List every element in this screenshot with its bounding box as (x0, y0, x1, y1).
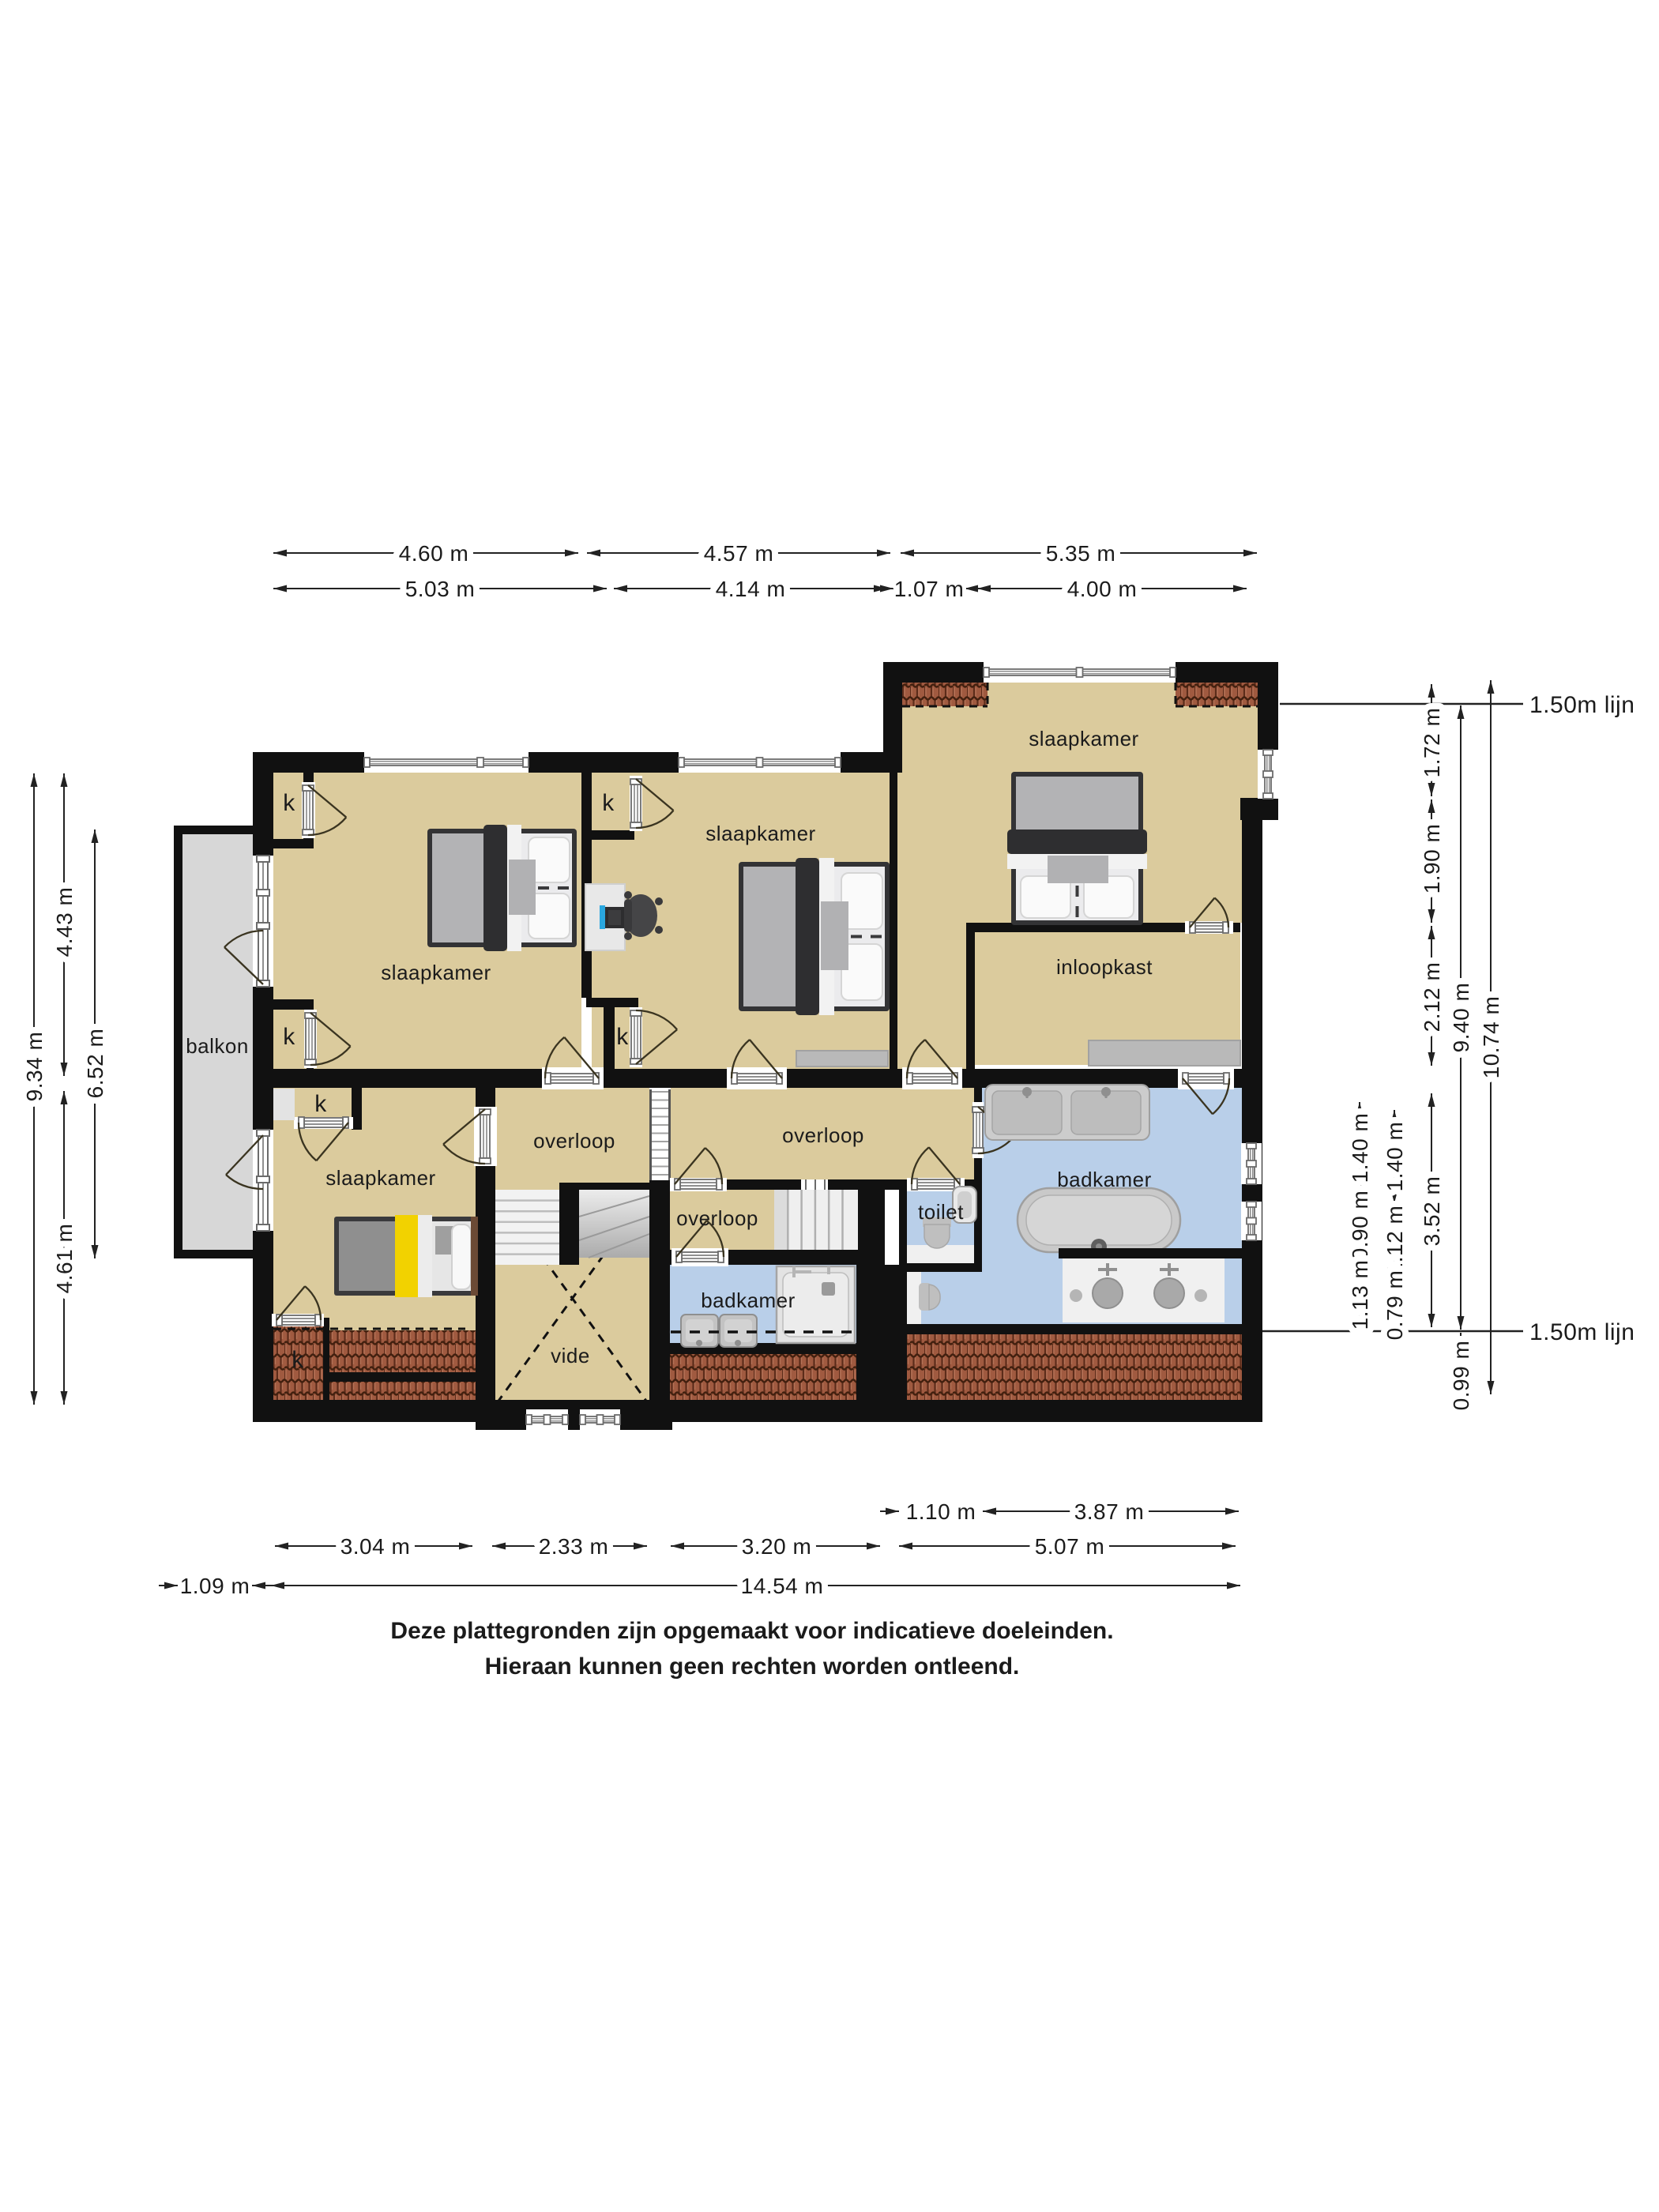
svg-text:1.07 m: 1.07 m (894, 577, 965, 601)
svg-text:4.43 m: 4.43 m (52, 887, 77, 957)
svg-text:Hieraan kunnen geen rechten wo: Hieraan kunnen geen rechten worden ontle… (485, 1653, 1020, 1680)
svg-text:9.34 m: 9.34 m (22, 1032, 47, 1102)
svg-text:slaapkamer: slaapkamer (705, 822, 815, 845)
svg-text:4.60 m: 4.60 m (399, 541, 469, 566)
svg-text:overloop: overloop (533, 1129, 615, 1153)
svg-text:14.54 m: 14.54 m (741, 1574, 824, 1598)
svg-text:1.12 m: 1.12 m (1382, 1206, 1407, 1276)
svg-text:0.79 m: 0.79 m (1382, 1270, 1407, 1341)
svg-text:1.09 m: 1.09 m (180, 1574, 250, 1598)
svg-text:2.12 m: 2.12 m (1420, 962, 1444, 1033)
svg-text:1.50m lijn: 1.50m lijn (1529, 692, 1635, 718)
svg-text:4.57 m: 4.57 m (704, 541, 774, 566)
svg-text:3.52 m: 3.52 m (1420, 1176, 1444, 1247)
svg-text:3.87 m: 3.87 m (1074, 1499, 1145, 1524)
svg-text:2.33 m: 2.33 m (539, 1534, 609, 1559)
svg-text:1.13 m: 1.13 m (1348, 1260, 1372, 1330)
svg-text:1.72 m: 1.72 m (1420, 708, 1444, 778)
svg-text:5.03 m: 5.03 m (405, 577, 476, 601)
svg-text:6.52 m: 6.52 m (83, 1029, 107, 1099)
svg-text:5.35 m: 5.35 m (1046, 541, 1116, 566)
svg-text:k: k (616, 1024, 629, 1050)
svg-text:4.00 m: 4.00 m (1067, 577, 1138, 601)
svg-text:slaapkamer: slaapkamer (325, 1166, 435, 1190)
svg-text:1.90 m: 1.90 m (1420, 824, 1444, 894)
svg-text:badkamer: badkamer (1057, 1168, 1152, 1191)
svg-text:3.20 m: 3.20 m (742, 1534, 812, 1559)
svg-text:4.61 m: 4.61 m (52, 1224, 77, 1294)
svg-text:overloop: overloop (676, 1206, 758, 1230)
svg-text:3.04 m: 3.04 m (340, 1534, 411, 1559)
svg-text:slaapkamer: slaapkamer (381, 961, 491, 984)
svg-text:toilet: toilet (918, 1200, 964, 1224)
svg-text:1.10 m: 1.10 m (906, 1499, 976, 1524)
svg-text:k: k (314, 1091, 327, 1117)
svg-text:0.99 m: 0.99 m (1449, 1341, 1473, 1411)
svg-text:slaapkamer: slaapkamer (1029, 727, 1138, 750)
svg-text:k: k (602, 790, 615, 816)
svg-text:balkon: balkon (186, 1034, 249, 1058)
svg-text:4.14 m: 4.14 m (716, 577, 786, 601)
svg-text:1.40 m: 1.40 m (1348, 1113, 1372, 1183)
svg-text:k: k (283, 1024, 295, 1050)
svg-text:5.07 m: 5.07 m (1035, 1534, 1105, 1559)
svg-text:badkamer: badkamer (701, 1288, 796, 1312)
svg-text:k: k (283, 790, 295, 816)
svg-text:10.74 m: 10.74 m (1479, 996, 1503, 1079)
svg-text:1.50m lijn: 1.50m lijn (1529, 1319, 1635, 1345)
svg-text:overloop: overloop (782, 1123, 864, 1147)
svg-text:0.90 m: 0.90 m (1348, 1191, 1372, 1261)
svg-text:Deze plattegronden zijn opgema: Deze plattegronden zijn opgemaakt voor i… (390, 1618, 1113, 1644)
svg-text:k: k (292, 1347, 304, 1373)
svg-text:1.40 m: 1.40 m (1382, 1122, 1407, 1192)
svg-text:vide: vide (551, 1344, 590, 1367)
svg-text:9.40 m: 9.40 m (1449, 983, 1473, 1053)
svg-text:inloopkast: inloopkast (1056, 955, 1153, 979)
